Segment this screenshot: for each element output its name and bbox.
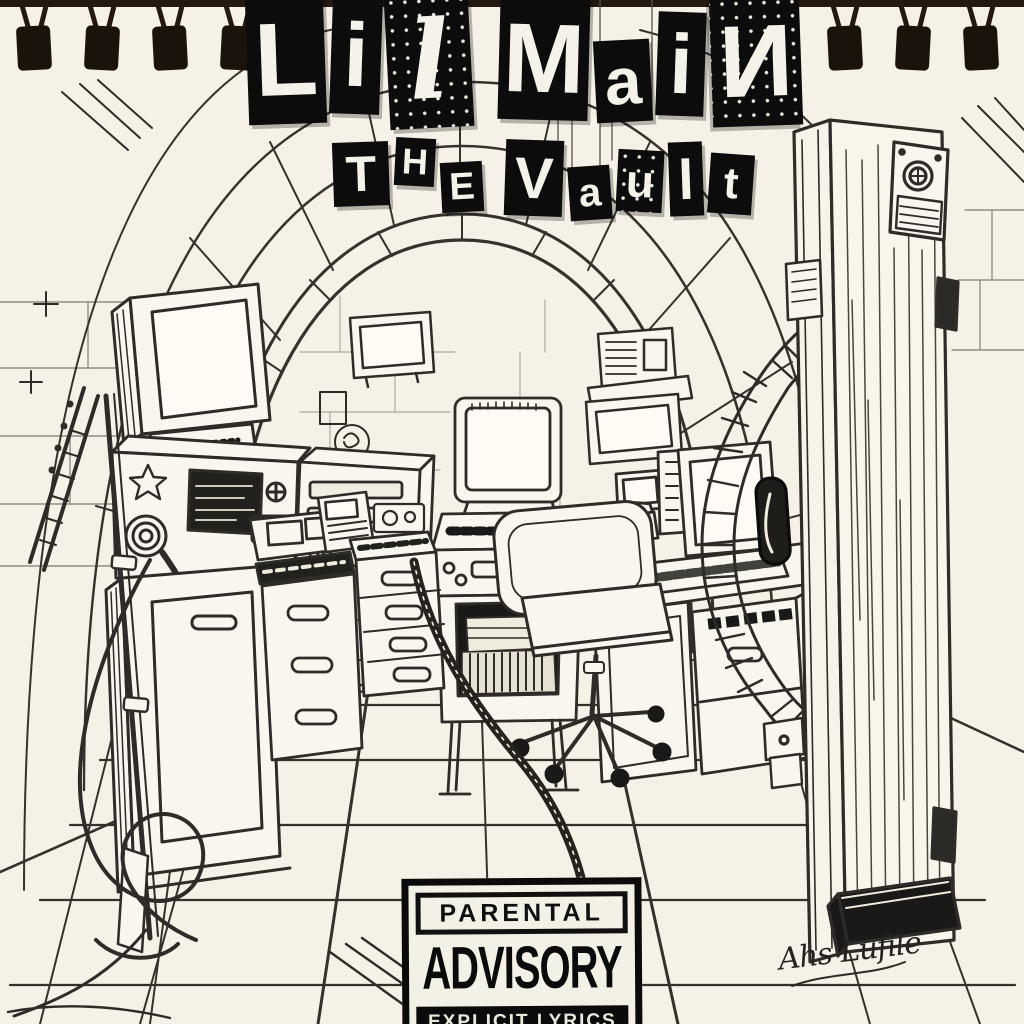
- title-word-lil: L i L: [244, 0, 474, 130]
- album-subtitle: T H E V a u l t: [330, 142, 756, 218]
- title-letter: L: [245, 0, 327, 125]
- outlet-plate: [374, 504, 424, 532]
- title-letter: a: [593, 39, 653, 124]
- subtitle-word-vault: V a u l t: [502, 142, 756, 218]
- advisory-line-parental: PARENTAL: [415, 891, 627, 934]
- title-letter-reversed-n: N: [709, 0, 803, 128]
- subtitle-letter: t: [707, 153, 755, 216]
- title-letter: i: [329, 0, 383, 115]
- door-hinge-lower: [932, 808, 956, 862]
- speaker-shelf: [586, 328, 692, 464]
- wall-tv: [350, 312, 434, 387]
- subtitle-letter: l: [668, 141, 705, 216]
- subtitle-letter: a: [567, 165, 613, 222]
- vault-door: [755, 120, 960, 962]
- subtitle-letter: H: [394, 137, 436, 187]
- title-word-main: M a i N: [496, 0, 804, 126]
- advisory-line-advisory: ADVISORY: [416, 939, 629, 1024]
- subtitle-word-the: T H E: [330, 142, 486, 206]
- title-letter: L: [384, 0, 475, 130]
- title-letter: i: [655, 11, 707, 117]
- album-cover: L i L M a i N T H E V a u l t PARENTAL A…: [0, 0, 1024, 1024]
- album-title: L i L M a i N: [244, 0, 804, 130]
- subtitle-letter: T: [332, 141, 390, 207]
- door-hinge-upper: [936, 278, 958, 330]
- subtitle-letter: u: [615, 149, 664, 213]
- title-letter: M: [497, 0, 590, 121]
- parental-advisory-label: PARENTAL ADVISORY EXPLICIT LYRICS: [401, 877, 642, 1024]
- subtitle-letter: V: [504, 139, 565, 217]
- subtitle-letter: E: [440, 161, 485, 213]
